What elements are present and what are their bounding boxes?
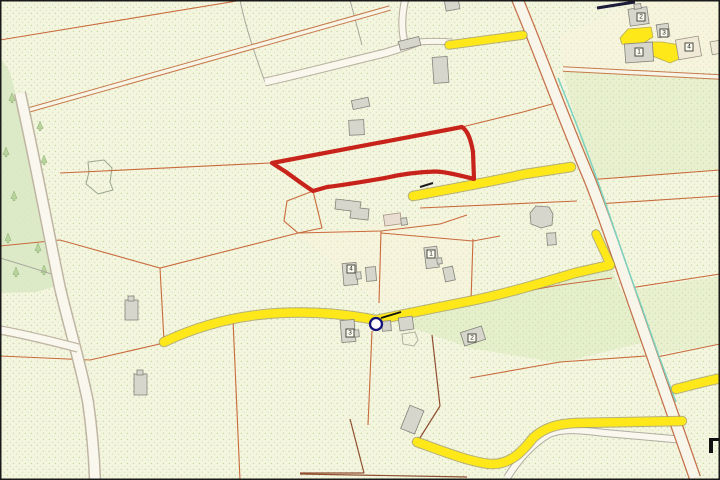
map-canvas — [0, 0, 720, 480]
plot-number-label-center-2: 2 — [468, 334, 477, 343]
plot-number-label-ne-3: 3 — [660, 29, 669, 38]
map-viewport[interactable]: 4 1 3 2 2 3 1 4 — [0, 0, 720, 480]
plot-number-label-center-3: 3 — [346, 329, 355, 338]
plot-number-label-ne-1: 1 — [635, 48, 644, 57]
plot-number-label-center-1: 1 — [427, 250, 436, 259]
plot-number-label-center-4: 4 — [347, 265, 356, 274]
plot-number-label-ne-2: 2 — [637, 13, 646, 22]
plot-number-label-ne-4: 4 — [685, 43, 694, 52]
